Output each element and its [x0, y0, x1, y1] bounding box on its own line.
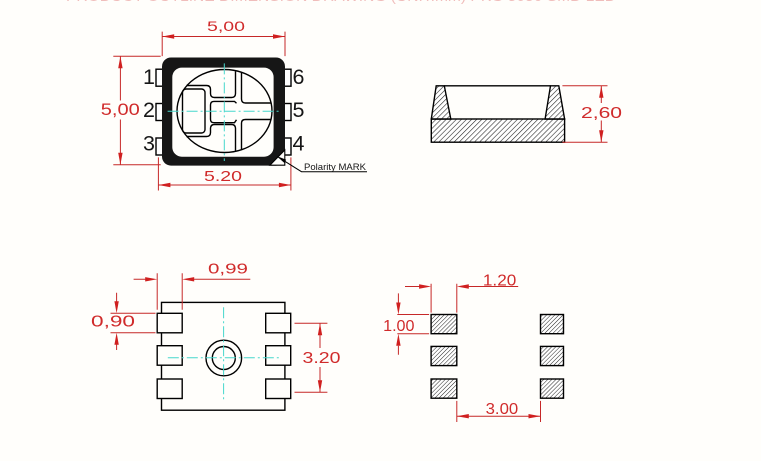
svg-text:5.20: 5.20 [204, 169, 242, 185]
svg-text:0,90: 0,90 [91, 314, 135, 331]
svg-text:Polarity MARK: Polarity MARK [304, 162, 367, 173]
svg-text:5,00: 5,00 [207, 18, 245, 34]
svg-text:5: 5 [293, 98, 305, 122]
svg-text:1.20: 1.20 [483, 273, 517, 290]
svg-text:4: 4 [293, 132, 305, 156]
svg-text:3.20: 3.20 [303, 350, 341, 367]
svg-text:6: 6 [293, 65, 305, 89]
svg-text:5,00: 5,00 [101, 101, 140, 119]
svg-text:0,99: 0,99 [208, 260, 248, 277]
svg-text:3: 3 [143, 132, 155, 156]
svg-text:3.00: 3.00 [486, 401, 519, 418]
svg-text:2,60: 2,60 [581, 105, 622, 122]
svg-text:PRODUCT OUTLINE DIMENSION DRAW: PRODUCT OUTLINE DIMENSION DRAWING (UNIT:… [66, 0, 616, 4]
svg-text:1.00: 1.00 [383, 318, 415, 335]
svg-text:1: 1 [143, 65, 155, 89]
svg-text:2: 2 [143, 98, 155, 122]
